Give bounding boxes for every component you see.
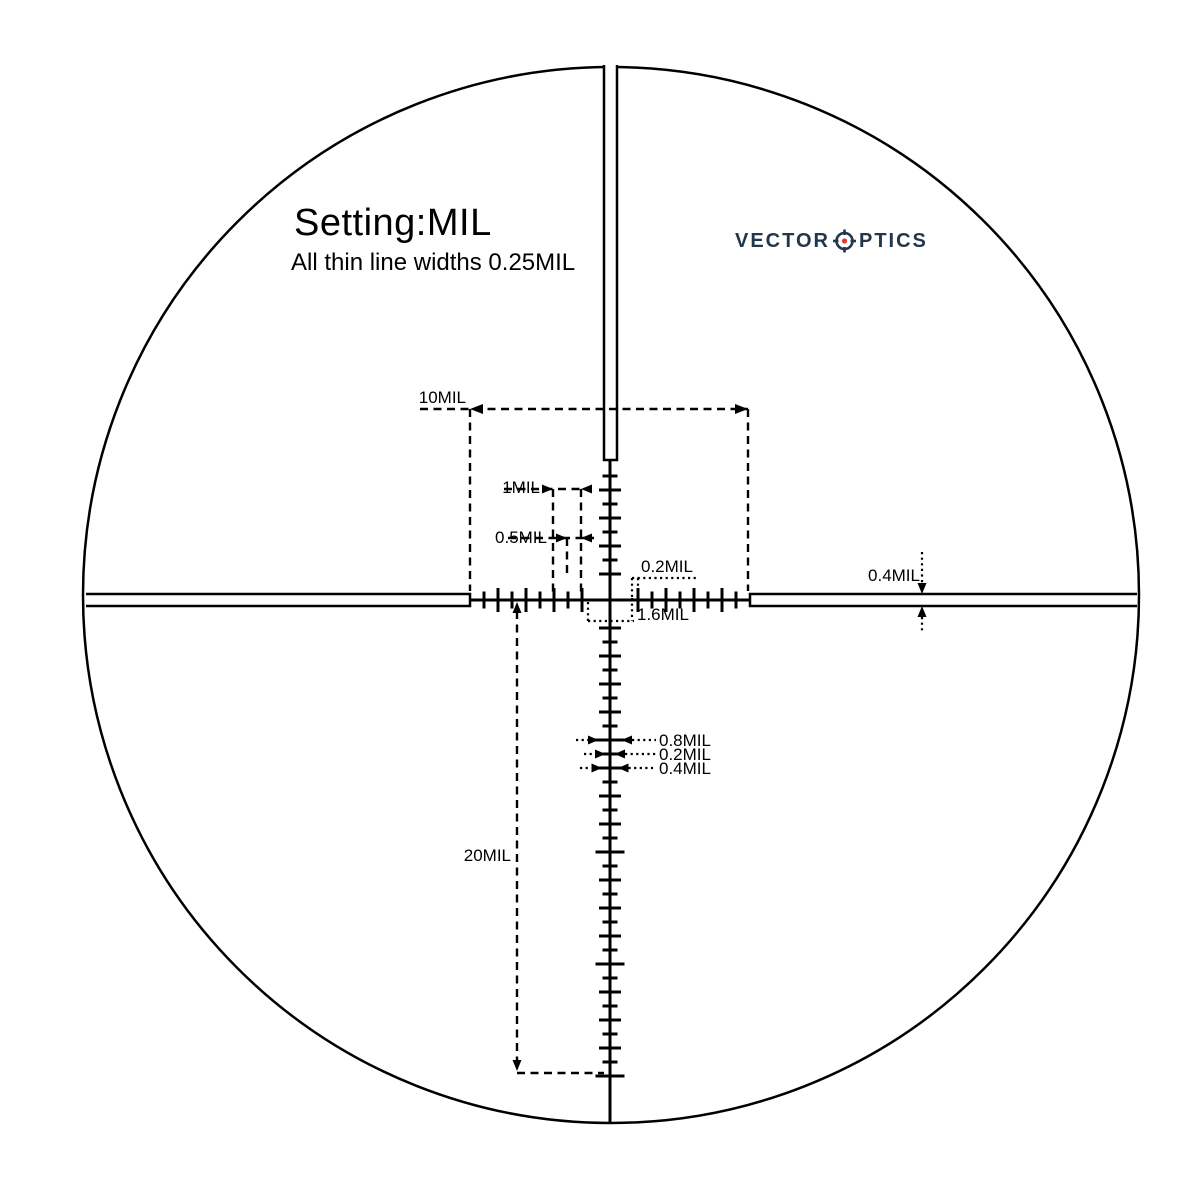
logo-word-ptics: PTICS [859,228,928,254]
arrowhead-icon [622,736,633,745]
arrowhead-icon [556,534,567,543]
dimension-0_4mil-bar: 0.4MIL [868,552,926,631]
label-0_2mil-center: 0.2MIL [641,557,693,576]
vector-optics-logo: VECTOR PTICS [735,227,928,254]
logo-word-vector: VECTOR [735,228,830,254]
arrowhead-icon [513,1060,522,1071]
label-1mil: 1MIL [502,478,540,497]
label-0_5mil: 0.5MIL [495,528,547,547]
top-post [604,65,617,460]
label-0_4mil-bar: 0.4MIL [868,566,920,585]
left-post [86,594,470,606]
arrowhead-icon [588,736,599,745]
arrowhead-icon [542,485,553,494]
label-0_4mil-tick: 0.4MIL [659,759,711,778]
label-10mil: 10MIL [419,388,466,407]
page-title: Setting:MIL [294,202,492,245]
dimension-20mil: 20MIL [464,602,604,1073]
reticle-spec-page: 10MIL 1MIL 0.5MIL 0.2MIL [0,0,1200,1200]
reticle-o-icon [831,227,858,254]
arrowhead-icon [918,606,927,617]
arrowhead-icon [618,764,629,773]
arrowhead-icon [581,534,592,543]
arrowhead-icon [592,764,603,773]
dimension-0_4mil-tick: 0.4MIL [580,759,711,778]
arrowhead-icon [581,485,592,494]
page-subtitle: All thin line widths 0.25MIL [291,249,575,277]
right-post [750,594,1137,606]
red-dot [842,238,847,243]
arrowhead-icon [470,404,483,414]
dimension-0_5mil: 0.5MIL [495,528,594,574]
arrowhead-icon [735,404,748,414]
arrowhead-icon [513,602,522,613]
label-1_6mil: 1.6MIL [637,605,689,624]
reticle-diagram: 10MIL 1MIL 0.5MIL 0.2MIL [0,0,1200,1200]
arrowhead-icon [595,750,606,759]
arrowhead-icon [615,750,626,759]
label-20mil: 20MIL [464,846,511,865]
